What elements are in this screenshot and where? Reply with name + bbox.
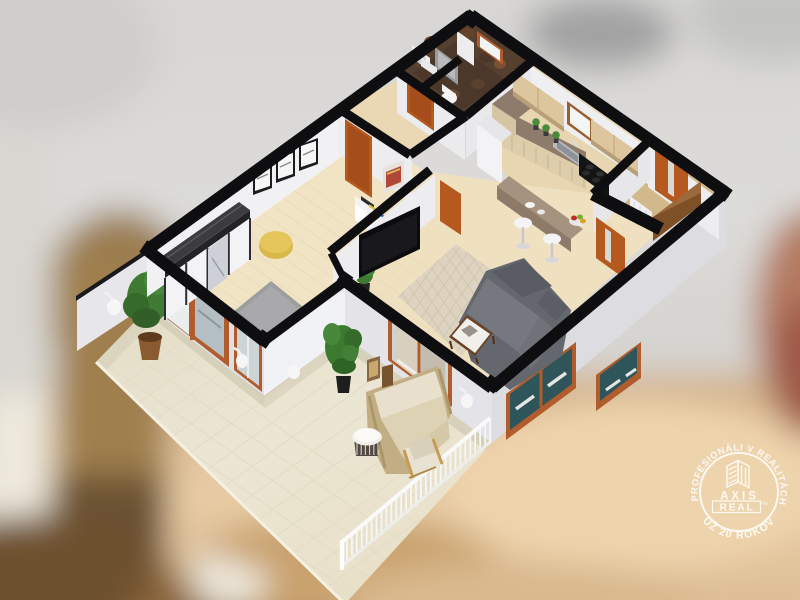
svg-text:TM: TM	[762, 501, 769, 506]
svg-text:REAL: REAL	[720, 502, 755, 514]
